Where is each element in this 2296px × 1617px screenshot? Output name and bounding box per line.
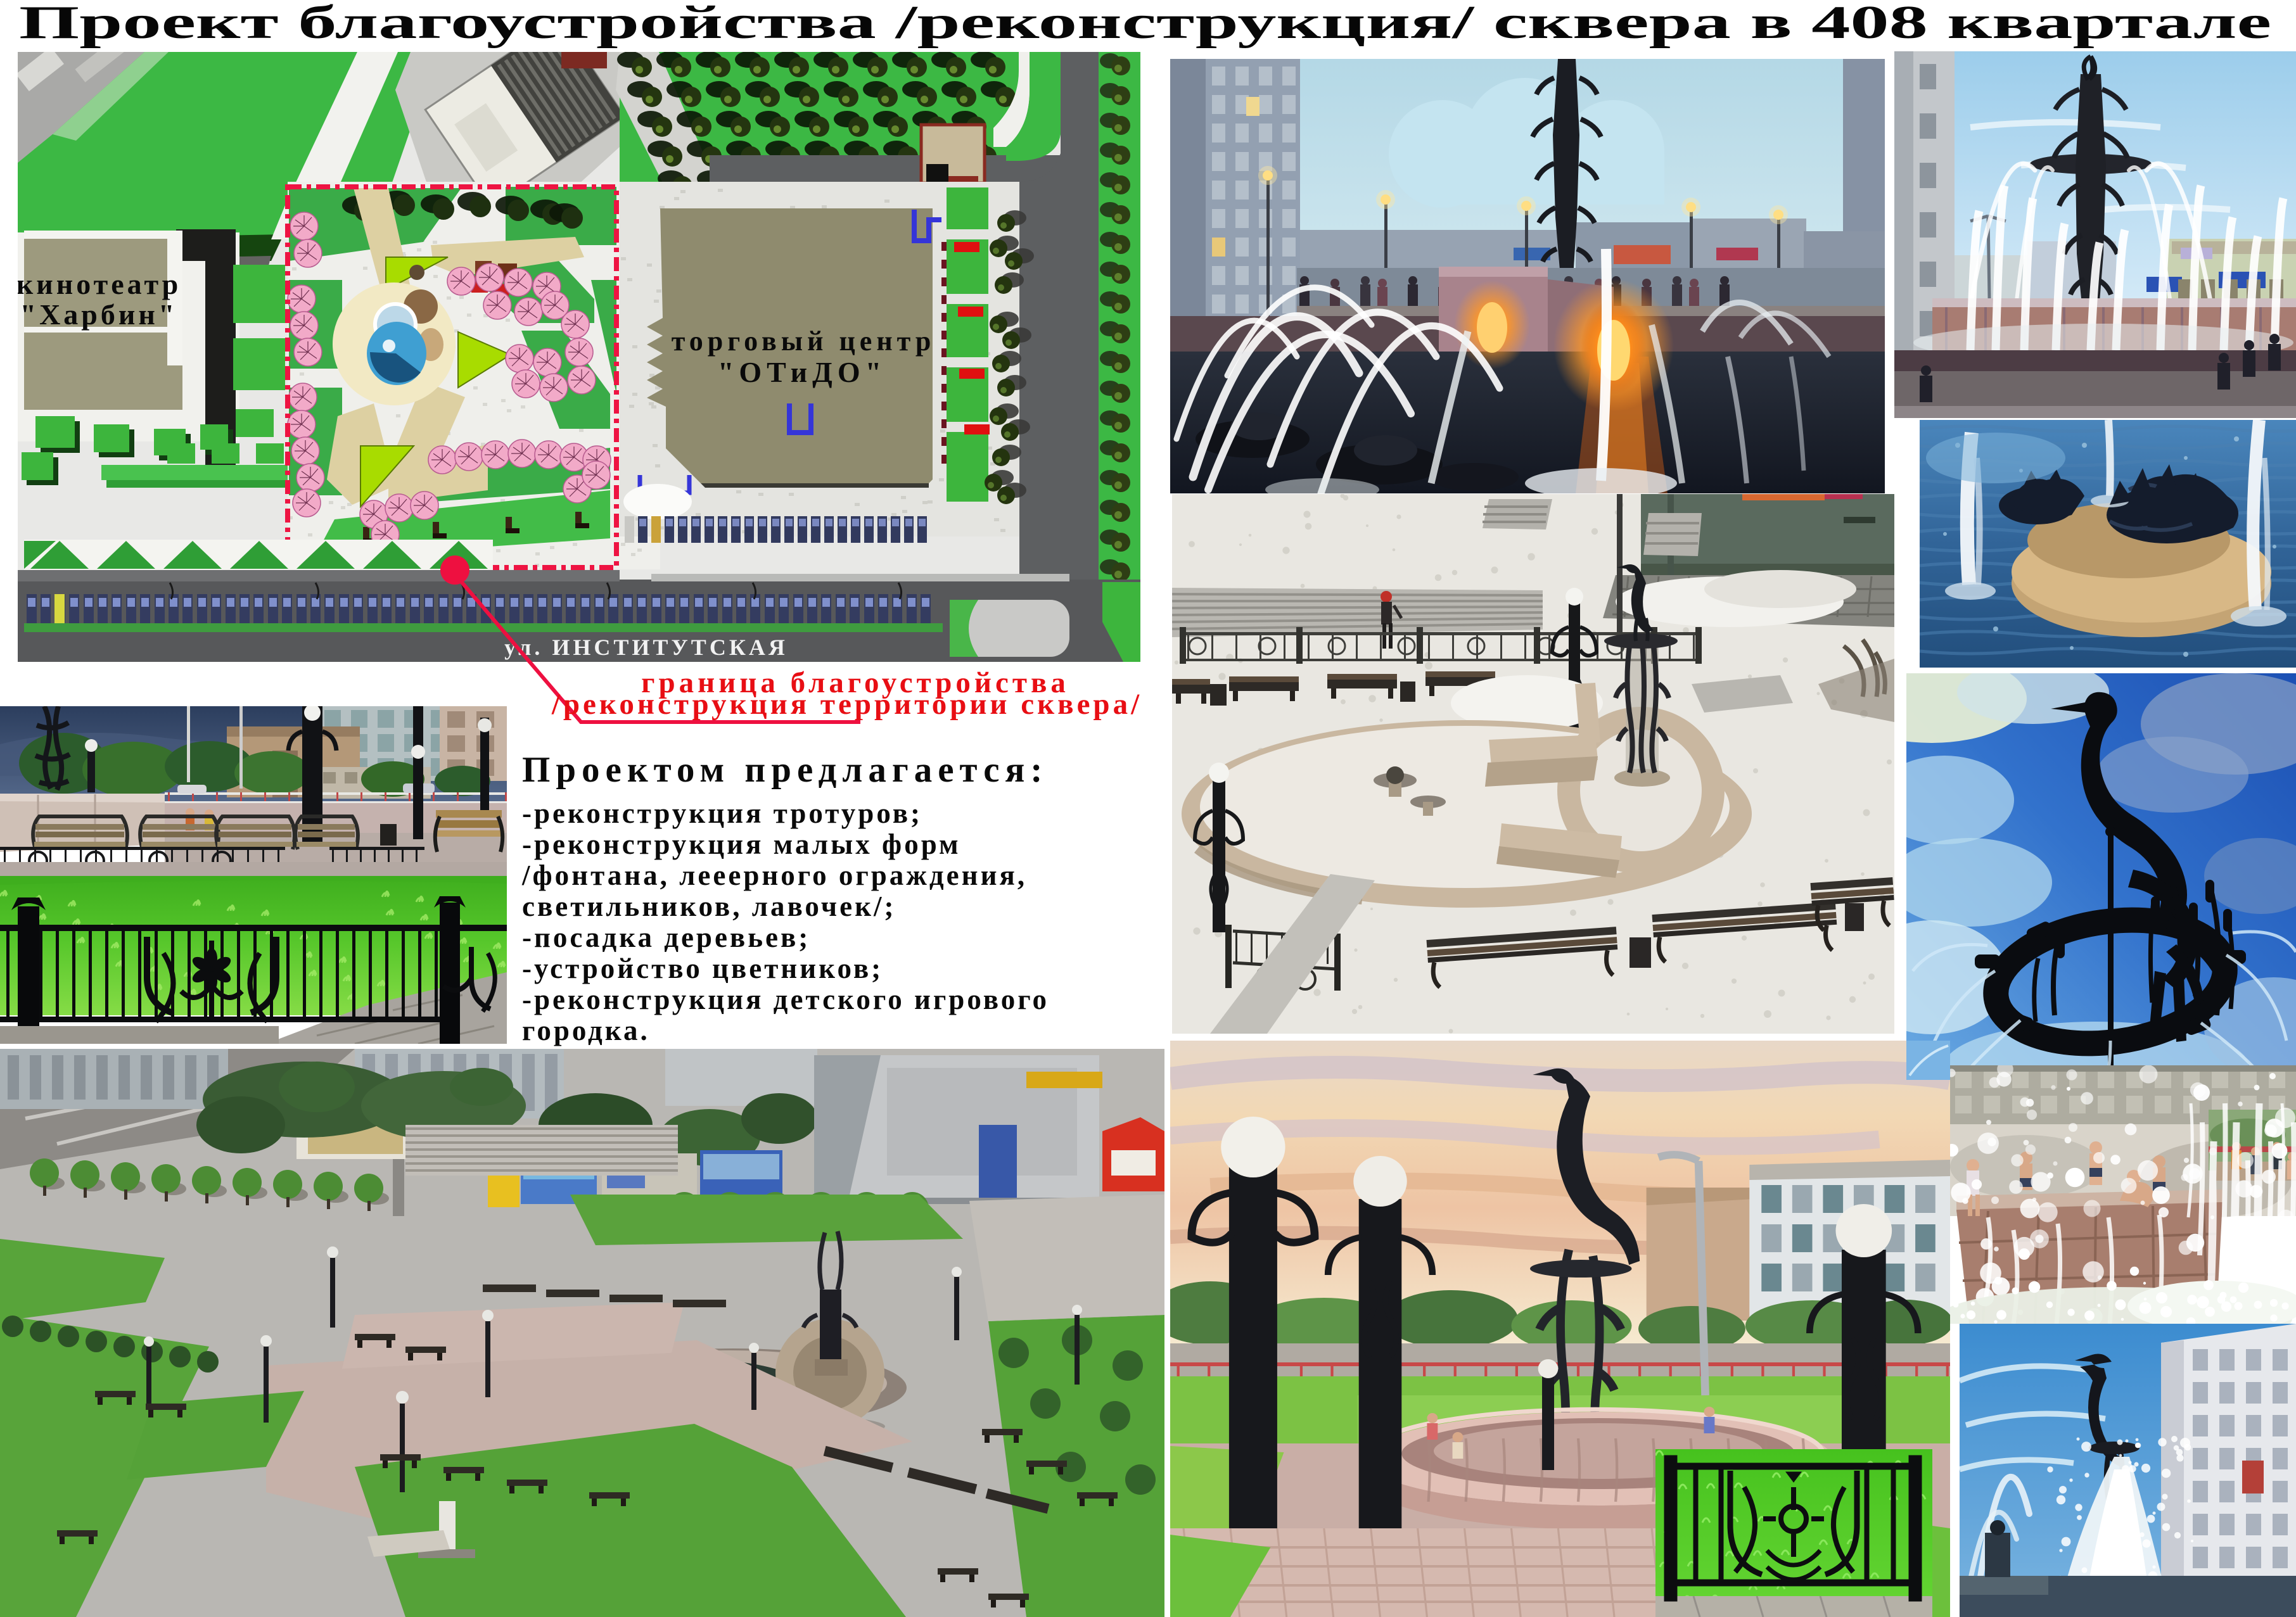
svg-text:"ОТиДО": "ОТиДО"	[718, 356, 886, 388]
svg-text:торговый центр: торговый центр	[672, 326, 936, 357]
svg-text:Проект благоустройства /реконс: Проект благоустройства /реконструкция/ с…	[19, 0, 2271, 49]
svg-text:/реконструкция территории скве: /реконструкция территории сквера/	[551, 688, 1140, 721]
svg-text:кинотеатр: кинотеатр	[18, 268, 181, 300]
svg-text:"Харбин": "Харбин"	[20, 298, 178, 331]
